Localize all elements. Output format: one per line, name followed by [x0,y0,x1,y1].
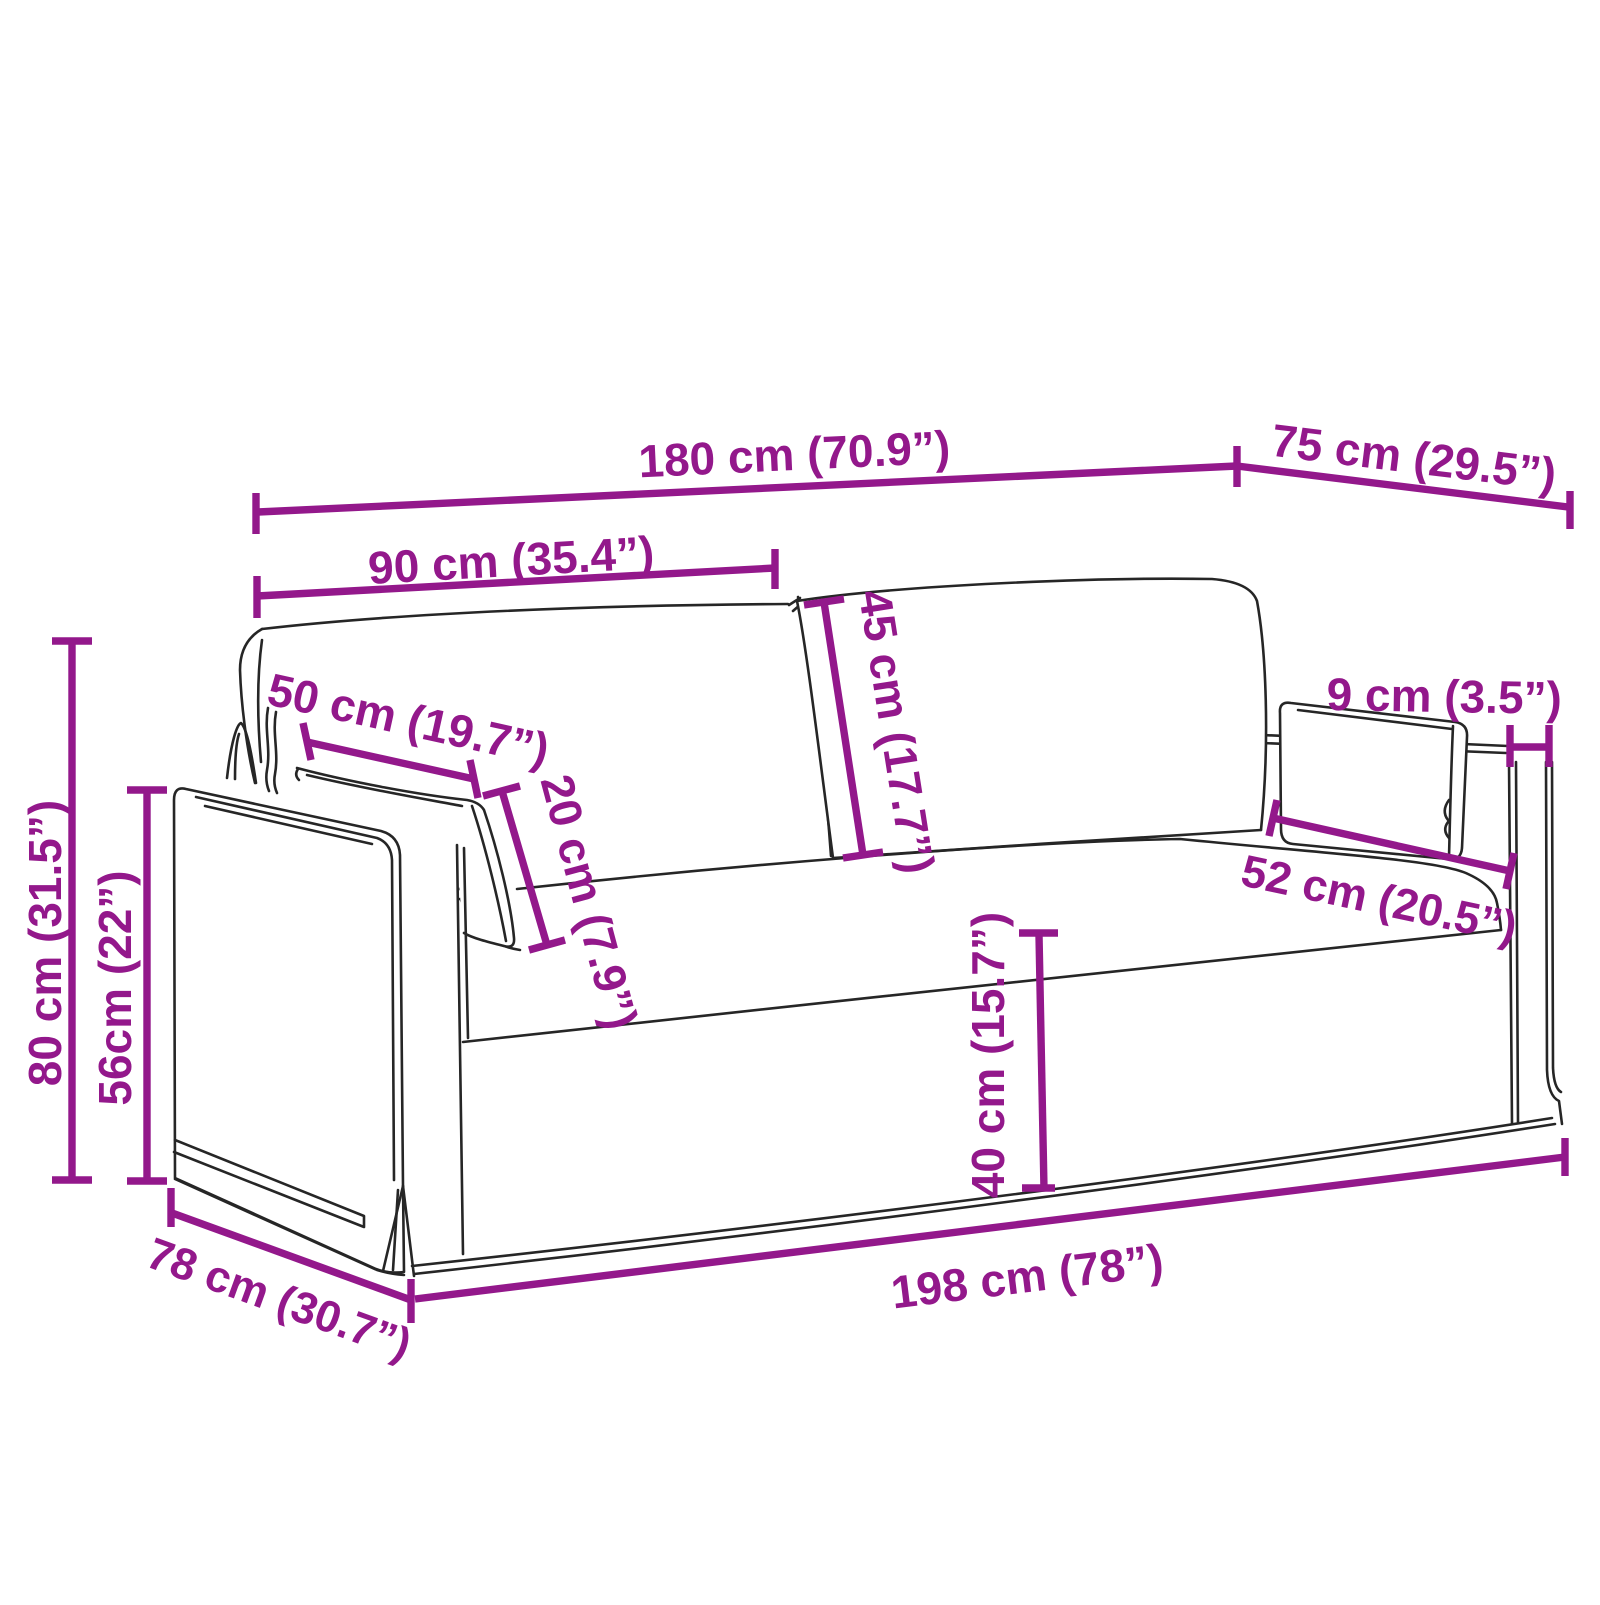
svg-text:40 cm (15.7”): 40 cm (15.7”) [962,912,1014,1198]
svg-text:9 cm (3.5”): 9 cm (3.5”) [1326,668,1562,724]
svg-text:56cm (22”): 56cm (22”) [89,870,141,1105]
svg-text:80 cm (31.5”): 80 cm (31.5”) [19,800,71,1086]
